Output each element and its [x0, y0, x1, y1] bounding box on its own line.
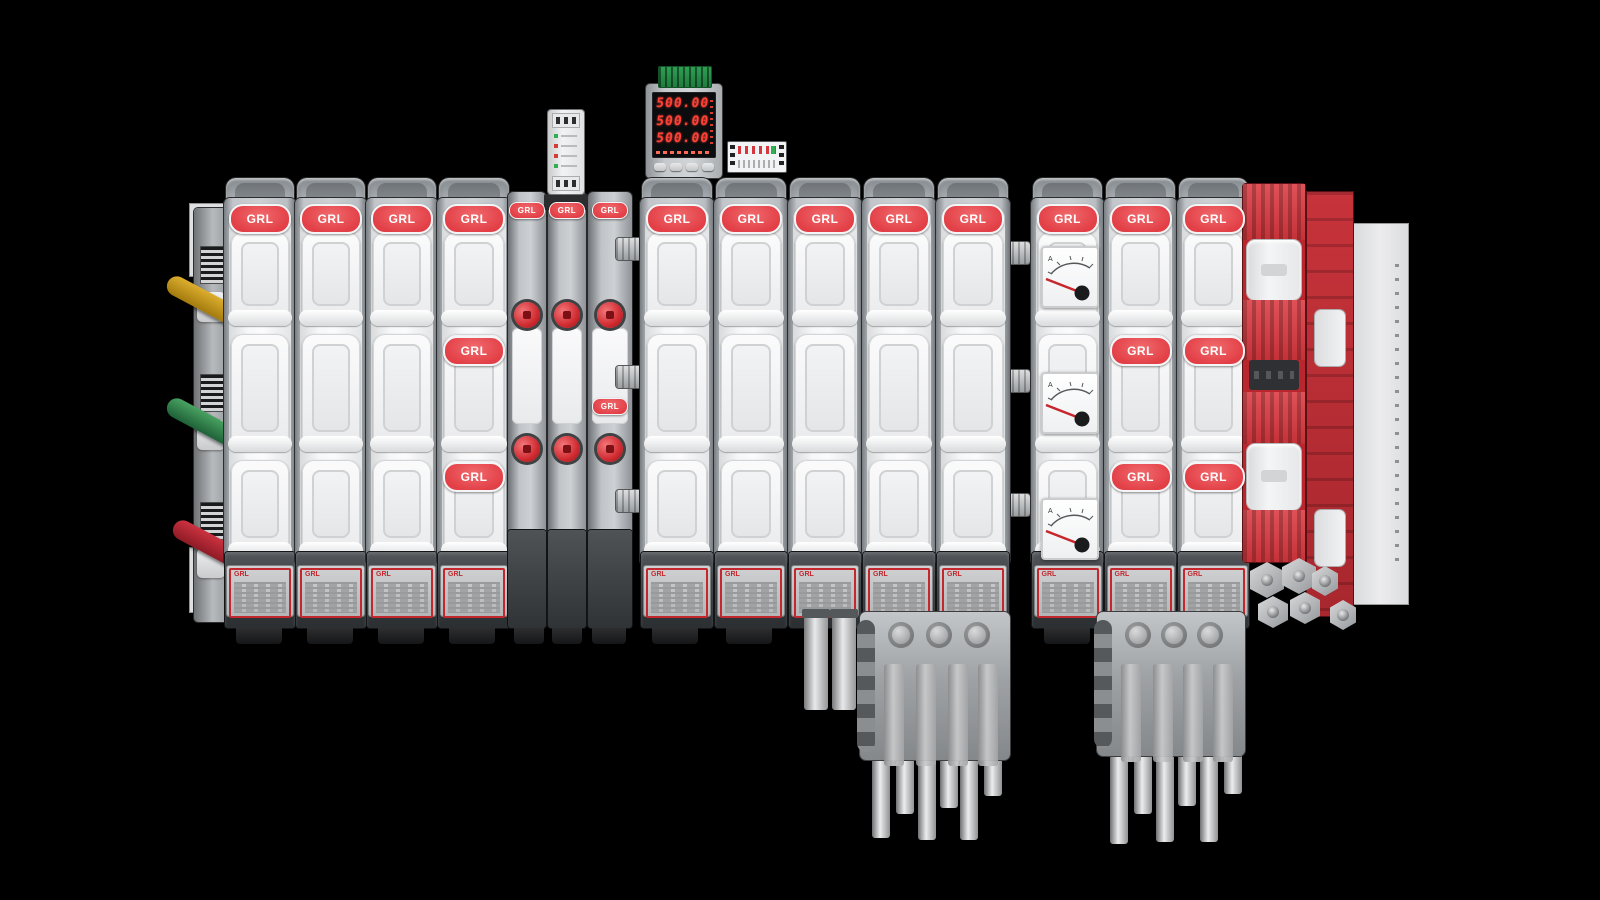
cable-connector-block [1097, 612, 1245, 756]
rating-label-brand: GRL [947, 571, 962, 578]
rating-label-frame: GRL [868, 568, 930, 618]
rating-label-brand: GRL [1115, 571, 1130, 578]
fuse-monitor-knob[interactable] [514, 302, 540, 328]
fuse-carrier-handle[interactable] [647, 334, 707, 450]
terminal-base: GRL [715, 552, 787, 628]
terminal-base [588, 530, 632, 628]
bolt [926, 622, 952, 648]
mount-foot [514, 628, 544, 644]
brand-badge: GRL [1183, 336, 1245, 366]
cable-shaft [948, 664, 968, 766]
brand-text: GRL [601, 402, 619, 411]
fuse-carrier-handle[interactable] [444, 232, 504, 324]
cable-connector-block [860, 612, 1010, 760]
brand-text: GRL [1200, 470, 1227, 484]
ammeter-unit: A [1048, 382, 1053, 389]
terminal-base: GRL [367, 552, 437, 628]
ammeter-unit: A [1048, 256, 1053, 263]
brand-badge: GRL [1183, 204, 1245, 234]
fuse-window [552, 328, 582, 424]
terminal-base: GRL [225, 552, 295, 628]
brand-badge: GRL [720, 204, 782, 234]
fuse-carrier-handle[interactable] [943, 460, 1003, 556]
cable-shaft [1153, 664, 1173, 762]
meter-button[interactable] [654, 163, 666, 171]
brand-text: GRL [461, 470, 488, 484]
fuse-carrier-handle[interactable] [795, 334, 855, 450]
red-fuse-holder-column [1243, 184, 1305, 562]
fuse-holder-red [1243, 184, 1305, 240]
analog-ammeter: A [1041, 372, 1099, 434]
terminal-block [658, 66, 712, 88]
nh-fuse-link[interactable] [1315, 310, 1345, 366]
mount-foot [1044, 628, 1090, 644]
fuse-carrier-handle[interactable] [373, 232, 431, 324]
bolt [1125, 622, 1151, 648]
rating-label-frame: GRL [1110, 568, 1172, 618]
mounting-back-panel [1352, 224, 1408, 604]
mount-screws [730, 145, 735, 169]
rating-label-text [651, 582, 703, 613]
fuse-window [512, 328, 542, 424]
vent-grille [200, 246, 226, 284]
grip-ridges [1094, 620, 1112, 748]
mount-foot [449, 628, 495, 644]
meter-status-segments [656, 151, 710, 154]
meter-display-row: 500.00 [655, 115, 711, 129]
brand-text: GRL [1127, 212, 1154, 226]
rating-label-frame: GRL [229, 568, 291, 618]
grip-ridges [857, 620, 875, 752]
brand-badge: GRL [371, 204, 433, 234]
mount-foot [726, 628, 772, 644]
led-indicators [553, 132, 579, 172]
rating-label-text [947, 582, 999, 613]
fuse-switch-strip[interactable]: GRL A A A [1031, 178, 1104, 628]
bolt [964, 622, 990, 648]
rating-label-brand: GRL [448, 571, 463, 578]
fuse-carrier-handle[interactable] [302, 460, 360, 556]
cable-shaft [916, 664, 936, 766]
rating-label-text [448, 582, 500, 613]
nh-fuse-link[interactable] [1315, 510, 1345, 566]
meter-unit-indicators [710, 100, 713, 148]
rating-label-brand: GRL [799, 571, 814, 578]
brand-badge: GRL [443, 336, 505, 366]
bolt [888, 622, 914, 648]
rating-label-frame: GRL [371, 568, 433, 618]
rating-label-brand: GRL [1042, 571, 1057, 578]
led-green [771, 146, 775, 154]
fuse-carrier-handle[interactable] [373, 334, 431, 450]
meter-display: 500.00 500.00 500.00 [652, 92, 716, 158]
brand-badge: GRL [1183, 462, 1245, 492]
brand-badge: GRL [229, 204, 291, 234]
fuse-switch-strip[interactable]: GRL GRL [714, 178, 788, 628]
fuse-holder-red [1243, 392, 1305, 444]
rating-label-text [305, 582, 357, 613]
fuse-monitor-knob[interactable] [554, 302, 580, 328]
rating-label: GRL [441, 566, 507, 616]
fuse-monitor-knob[interactable] [597, 302, 623, 328]
fuse-carrier-handle[interactable] [231, 232, 289, 324]
rating-label: GRL [298, 566, 364, 616]
cable-shaft [978, 664, 998, 766]
analog-ammeter: A [1041, 246, 1099, 308]
mount-foot [236, 628, 282, 644]
brand-text: GRL [960, 212, 987, 226]
mounting-clamp [1250, 562, 1284, 598]
equipment-photo: GRL GRL GRL GRL GRL GRL [0, 0, 1600, 900]
rating-label: GRL [1108, 566, 1174, 616]
fuse-carrier-handle[interactable] [1184, 232, 1243, 324]
led-indicator-panel [727, 141, 787, 173]
terminal-base: GRL [438, 552, 510, 628]
brand-text: GRL [1127, 470, 1154, 484]
brand-badge: GRL [509, 202, 545, 219]
meter-button[interactable] [686, 163, 698, 171]
brand-badge: GRL [592, 398, 628, 415]
cable-shaft [884, 664, 904, 766]
fuse-carrier-handle[interactable] [869, 334, 929, 450]
fuse-carrier-handle[interactable] [302, 334, 360, 450]
rating-label-brand: GRL [1188, 571, 1203, 578]
brand-text: GRL [1200, 212, 1227, 226]
red-fuse-rail [1307, 192, 1353, 616]
analog-ammeter: A [1041, 498, 1099, 560]
terminal-base: GRL [1032, 552, 1103, 628]
rating-label-brand: GRL [376, 571, 391, 578]
terminal-strip [552, 176, 580, 191]
fuse-carrier-handle[interactable] [869, 460, 929, 556]
brand-badge: GRL [1110, 462, 1172, 492]
fuse-switch-strip[interactable]: GRL GRL [640, 178, 714, 628]
rating-label-frame: GRL [1183, 568, 1245, 618]
din-relay-module [548, 110, 584, 194]
brand-text: GRL [1200, 344, 1227, 358]
brand-badge: GRL [794, 204, 856, 234]
brand-badge: GRL [300, 204, 362, 234]
meter-button[interactable] [670, 163, 682, 171]
brand-badge: GRL [646, 204, 708, 234]
fuse-carrier-handle[interactable] [647, 232, 707, 324]
terminal-base: GRL [296, 552, 366, 628]
mount-foot [552, 628, 582, 644]
cable-sleeve [804, 614, 828, 710]
fuse-holder-red [1243, 300, 1305, 360]
brand-text: GRL [461, 344, 488, 358]
brand-text: GRL [886, 212, 913, 226]
ammeter-scale: A [1043, 374, 1097, 432]
fuse-carrier-handle[interactable] [943, 334, 1003, 450]
terminal-base [508, 530, 546, 628]
fuse-switch-strip[interactable]: GRL GRL [295, 178, 367, 628]
rating-label-brand: GRL [651, 571, 666, 578]
meter-button[interactable] [702, 163, 714, 171]
fuse-carrier-handle[interactable] [795, 232, 855, 324]
rating-label-frame: GRL [443, 568, 505, 618]
rating-label: GRL [227, 566, 293, 616]
rating-label-text [376, 582, 428, 613]
rating-label: GRL [644, 566, 710, 616]
rating-label: GRL [369, 566, 435, 616]
brand-badge: GRL [443, 462, 505, 492]
fuse-carrier-handle[interactable] [721, 232, 781, 324]
panel-text [738, 160, 776, 168]
rating-label: GRL [866, 566, 932, 616]
brand-text: GRL [389, 212, 416, 226]
ammeter-scale: A [1043, 248, 1097, 306]
rating-label: GRL [1181, 566, 1247, 616]
rating-label-brand: GRL [725, 571, 740, 578]
fuse-carrier-handle[interactable] [1111, 232, 1170, 324]
narrow-fuse-strip[interactable]: GRL [548, 192, 586, 628]
cable-shaft [1213, 664, 1233, 762]
narrow-fuse-strip[interactable]: GRL [508, 192, 546, 628]
rating-label-frame: GRL [1037, 568, 1099, 618]
brand-badge: GRL [868, 204, 930, 234]
brand-badge: GRL [549, 202, 585, 219]
fuse-switch-strip[interactable]: GRL GRL [862, 178, 936, 628]
fuse-carrier-handle[interactable] [721, 334, 781, 450]
fuse-carrier-handle[interactable] [647, 460, 707, 556]
fuse-switch-strip[interactable]: GRL GRL [224, 178, 296, 628]
meter-display-row: 500.00 [655, 132, 711, 146]
rating-label-brand: GRL [234, 571, 249, 578]
bolt [1197, 622, 1223, 648]
fuse-switch-strip[interactable]: GRL GRL GRL GRL [1177, 178, 1250, 628]
rating-label: GRL [718, 566, 784, 616]
fuse-switch-strip[interactable]: GRL GRL [788, 178, 862, 628]
brand-badge: GRL [1110, 336, 1172, 366]
mount-foot [652, 628, 698, 644]
fuse-switch-strip[interactable]: GRL GRL [936, 178, 1010, 628]
terminal-base: GRL [641, 552, 713, 628]
digital-power-meter: 500.00 500.00 500.00 [646, 84, 722, 178]
terminal-strip [552, 113, 580, 128]
rating-label-frame: GRL [646, 568, 708, 618]
ammeter-scale: A [1043, 500, 1097, 558]
brand-text: GRL [738, 212, 765, 226]
mount-foot [592, 628, 626, 644]
rating-label-text [1115, 582, 1167, 613]
brand-text: GRL [812, 212, 839, 226]
rating-label-text [873, 582, 925, 613]
cable-shaft [1183, 664, 1203, 762]
rating-label-text [1188, 582, 1240, 613]
fuse-switch-strip[interactable]: GRL GRL GRL GRL [1104, 178, 1177, 628]
mount-screws [779, 145, 784, 169]
brand-text: GRL [1054, 212, 1081, 226]
fuse-monitor-knob[interactable] [554, 436, 580, 462]
rating-label-frame: GRL [720, 568, 782, 618]
brand-text: GRL [601, 206, 619, 215]
brand-badge: GRL [443, 204, 505, 234]
brand-badge: GRL [1110, 204, 1172, 234]
rating-label: GRL [1035, 566, 1101, 616]
brand-text: GRL [247, 212, 274, 226]
rating-label-frame: GRL [942, 568, 1004, 618]
nh-fuse-link[interactable] [1247, 444, 1301, 510]
vent-grille [200, 374, 226, 412]
panel-screws [1395, 264, 1399, 564]
fuse-monitor-knob[interactable] [597, 436, 623, 462]
cable-sleeve [832, 614, 856, 710]
mount-foot [378, 628, 424, 644]
ammeter-unit: A [1048, 508, 1053, 515]
connector-strip [1249, 360, 1299, 390]
fuse-holder-red [1243, 510, 1305, 562]
brand-text: GRL [558, 206, 576, 215]
fuse-switch-strip[interactable]: GRL GRL [366, 178, 438, 628]
rating-label: GRL [940, 566, 1006, 616]
terminal-base [548, 530, 586, 628]
bolt [1161, 622, 1187, 648]
rating-label-frame: GRL [300, 568, 362, 618]
rating-label-brand: GRL [305, 571, 320, 578]
fuse-carrier-handle[interactable] [302, 232, 360, 324]
rating-label-text [1042, 582, 1094, 613]
rating-label-text [725, 582, 777, 613]
meter-button-row [652, 163, 716, 173]
nh-fuse-link[interactable] [1247, 240, 1301, 300]
brand-badge: GRL [592, 202, 628, 219]
fuse-monitor-knob[interactable] [514, 436, 540, 462]
mounting-clamp [1258, 596, 1288, 628]
brand-text: GRL [1127, 344, 1154, 358]
meter-display-row: 500.00 [655, 97, 711, 111]
fuse-carrier-handle[interactable] [721, 460, 781, 556]
brand-badge: GRL [942, 204, 1004, 234]
fuse-switch-strip[interactable]: GRL GRL GRL GRL [437, 178, 511, 628]
mount-foot [307, 628, 353, 644]
fuse-carrier-handle[interactable] [231, 334, 289, 450]
cable-shaft [1121, 664, 1141, 762]
fuse-carrier-handle[interactable] [795, 460, 855, 556]
brand-text: GRL [318, 212, 345, 226]
brand-text: GRL [461, 212, 488, 226]
fuse-carrier-handle[interactable] [373, 460, 431, 556]
brand-badge: GRL [1037, 204, 1099, 234]
brand-text: GRL [518, 206, 536, 215]
brand-text: GRL [664, 212, 691, 226]
fuse-carrier-handle[interactable] [943, 232, 1003, 324]
fuse-carrier-handle[interactable] [869, 232, 929, 324]
fuse-carrier-handle[interactable] [231, 460, 289, 556]
rating-label-text [234, 582, 286, 613]
rating-label-brand: GRL [873, 571, 888, 578]
